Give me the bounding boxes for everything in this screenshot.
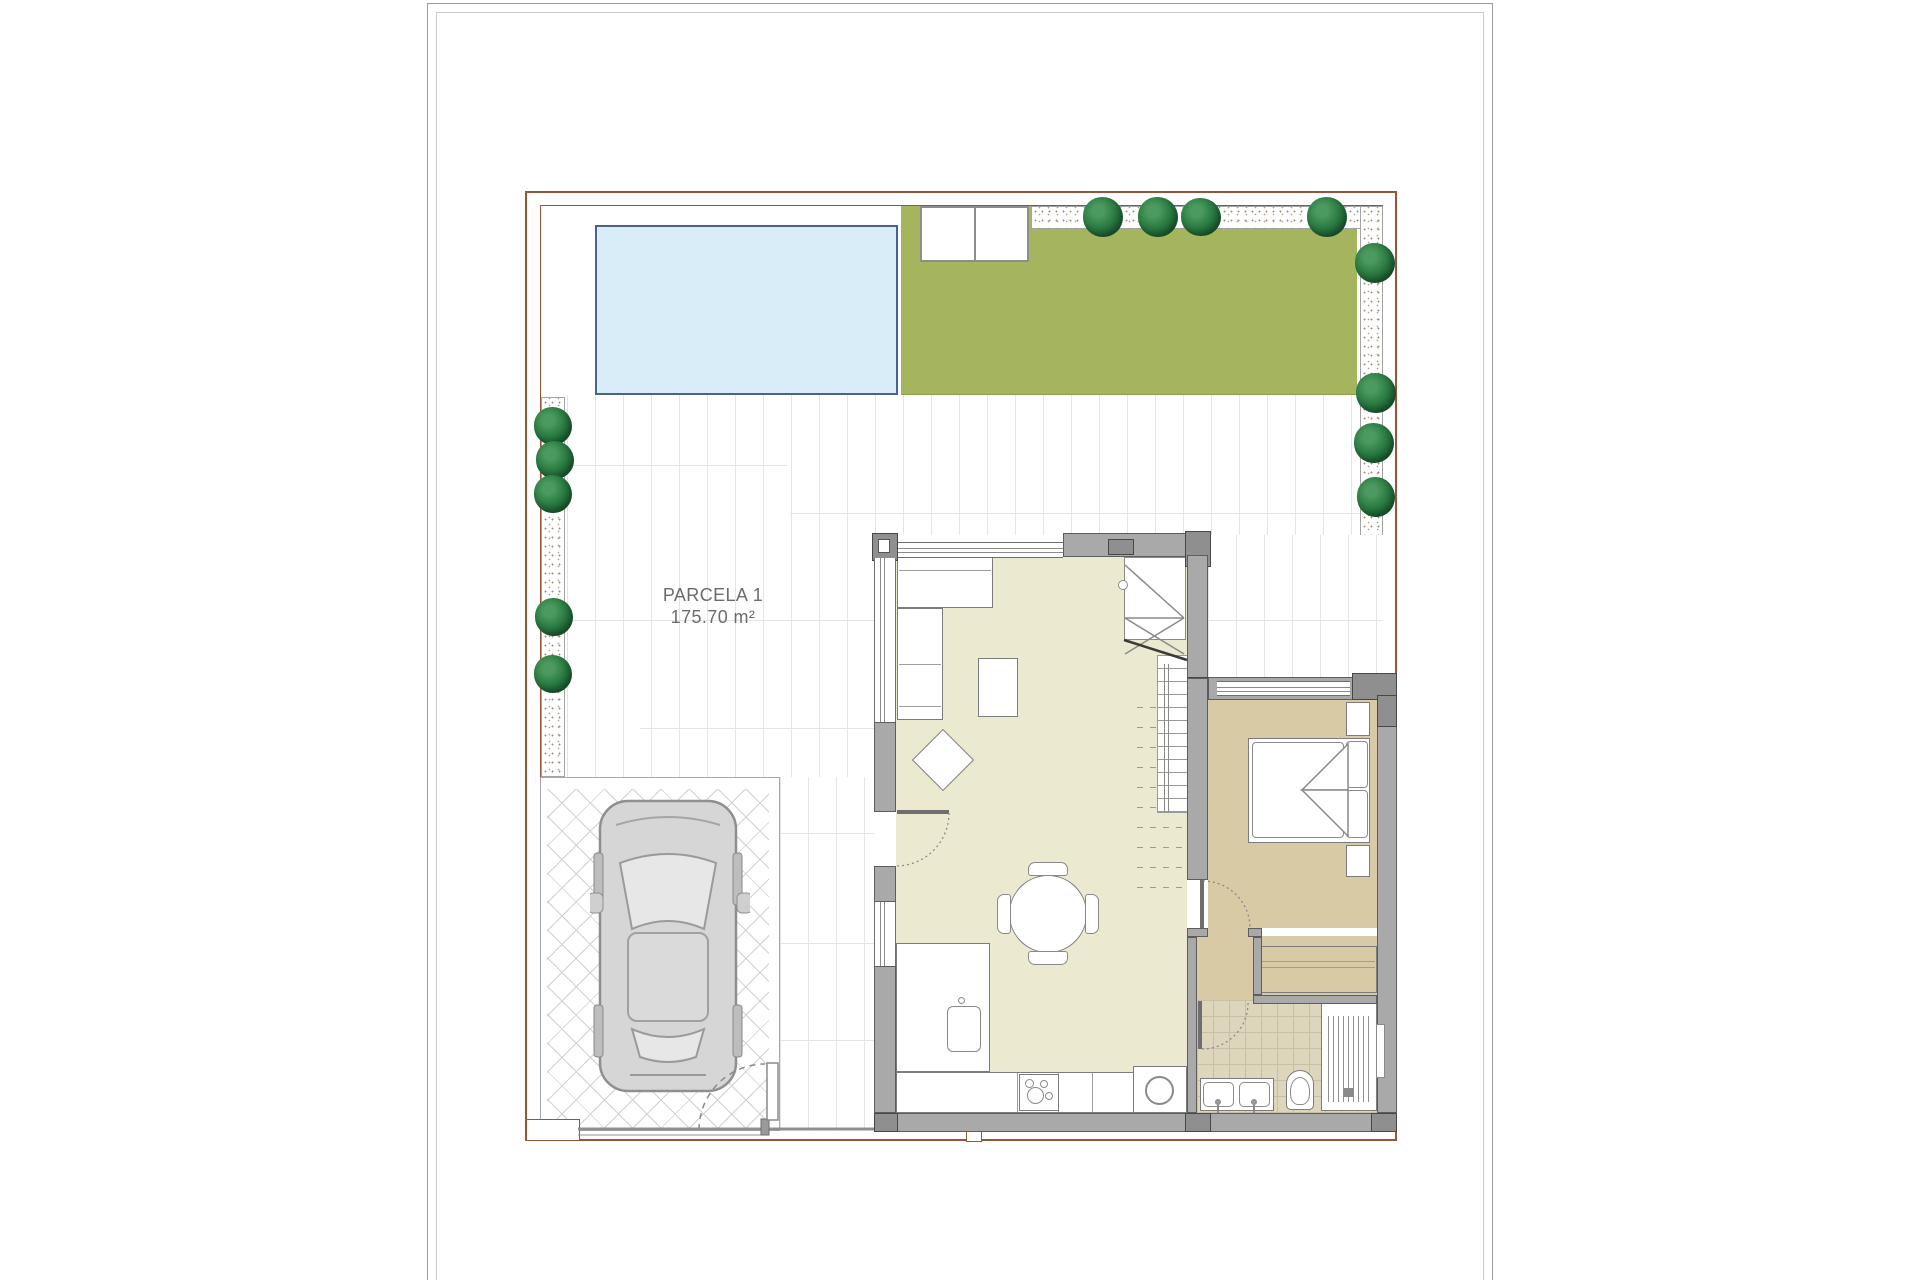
boundary-fence-line [578,1129,874,1135]
door-swing-arc-icon [896,813,1250,1049]
door-leaf [897,812,1202,1049]
basin-tap-stem [1218,1105,1254,1113]
plan-lineart [0,0,1920,1280]
gate-post [761,1119,769,1135]
pedestrian-gate-leaf [767,1063,778,1120]
plan-canvas: PARCELA 1 175.70 m² [0,0,1920,1280]
parcel-area-label: 175.70 m² [628,606,798,628]
parcel-label-block: PARCELA 1 175.70 m² [628,584,798,628]
driveway-gate-arc-icon [699,1064,765,1130]
parcel-name-label: PARCELA 1 [628,584,798,606]
stair-winder-lines [1125,565,1184,654]
bed-fold-icon [1302,744,1348,836]
